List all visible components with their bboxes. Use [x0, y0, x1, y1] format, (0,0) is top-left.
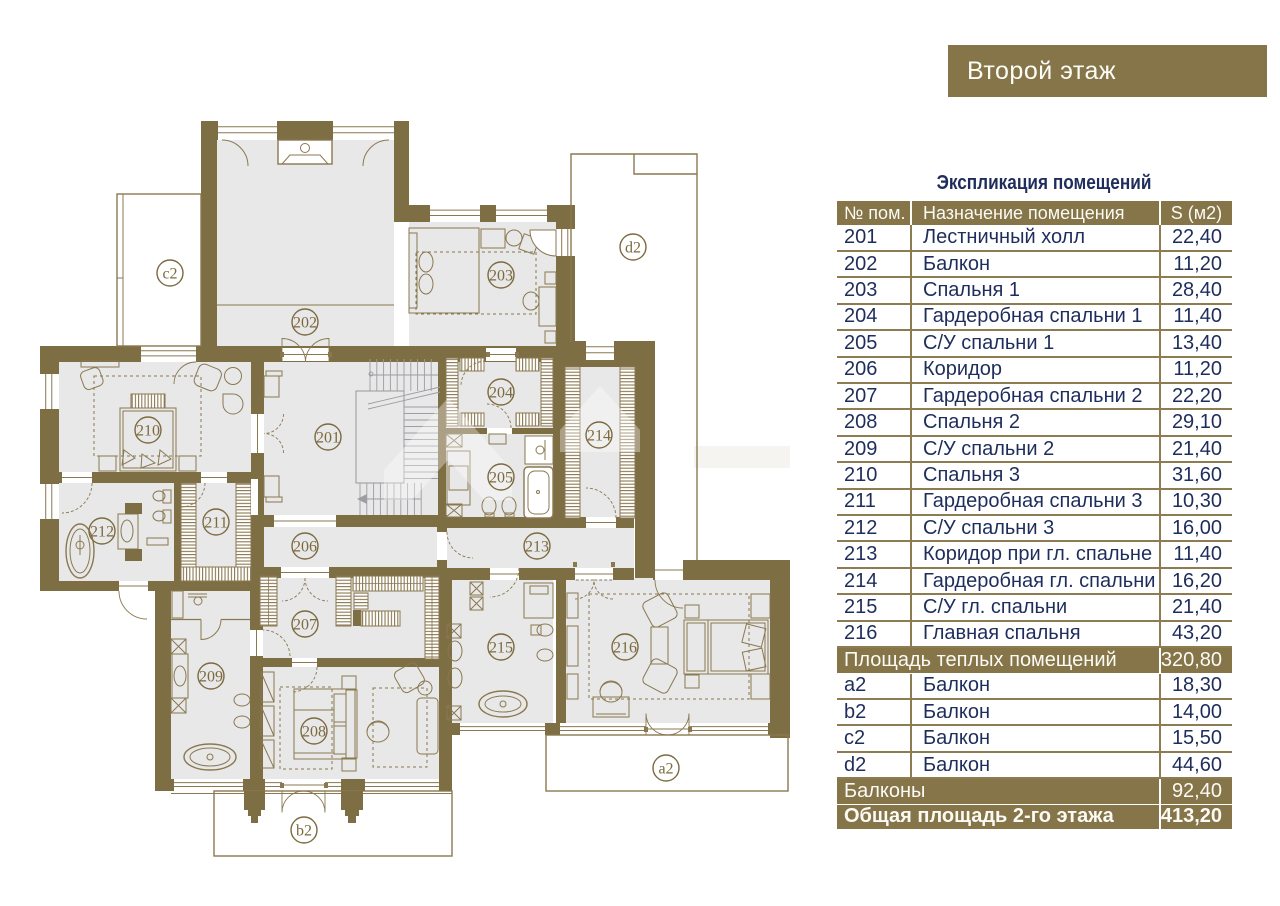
- svg-text:209: 209: [199, 669, 223, 686]
- svg-text:a2: a2: [658, 761, 673, 778]
- svg-text:213: 213: [525, 539, 549, 556]
- svg-text:211: 211: [204, 515, 227, 532]
- svg-text:212: 212: [90, 524, 114, 541]
- svg-text:215: 215: [489, 640, 513, 657]
- svg-text:214: 214: [587, 428, 611, 445]
- svg-text:b2: b2: [296, 823, 312, 840]
- svg-text:206: 206: [293, 539, 317, 556]
- svg-text:201: 201: [316, 430, 340, 447]
- svg-text:208: 208: [302, 724, 326, 741]
- svg-text:210: 210: [136, 423, 160, 440]
- svg-text:216: 216: [613, 640, 637, 657]
- svg-text:d2: d2: [625, 240, 641, 257]
- svg-text:204: 204: [489, 385, 513, 402]
- svg-text:202: 202: [293, 315, 317, 332]
- svg-text:207: 207: [293, 617, 317, 634]
- svg-text:c2: c2: [162, 266, 177, 283]
- svg-text:203: 203: [489, 268, 513, 285]
- svg-text:205: 205: [489, 470, 513, 487]
